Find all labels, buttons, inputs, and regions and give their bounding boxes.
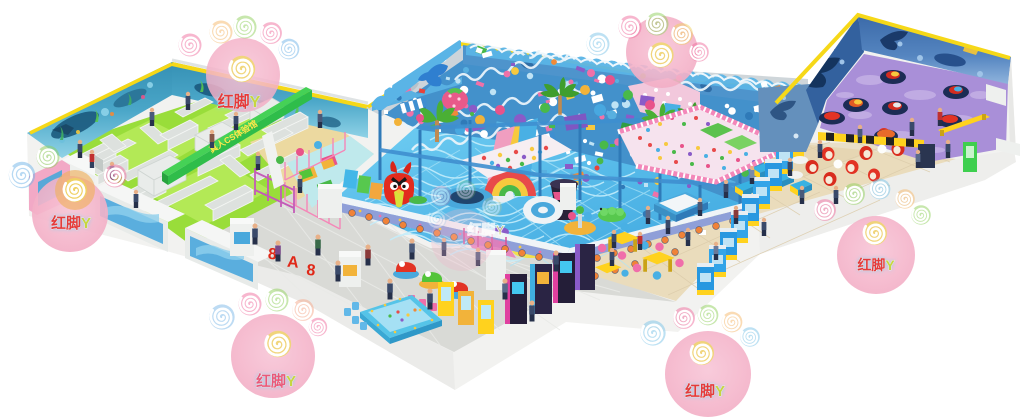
svg-text:红脚Y: 红脚Y xyxy=(256,372,296,390)
svg-text:A: A xyxy=(286,254,300,272)
svg-text:红脚Y: 红脚Y xyxy=(685,382,725,400)
svg-text:红脚Y: 红脚Y xyxy=(218,92,261,111)
svg-text:红脚Y: 红脚Y xyxy=(51,214,91,232)
svg-text:红脚Y: 红脚Y xyxy=(857,257,895,273)
svg-text:红脚Y: 红脚Y xyxy=(467,222,505,238)
svg-text:8: 8 xyxy=(306,262,317,280)
